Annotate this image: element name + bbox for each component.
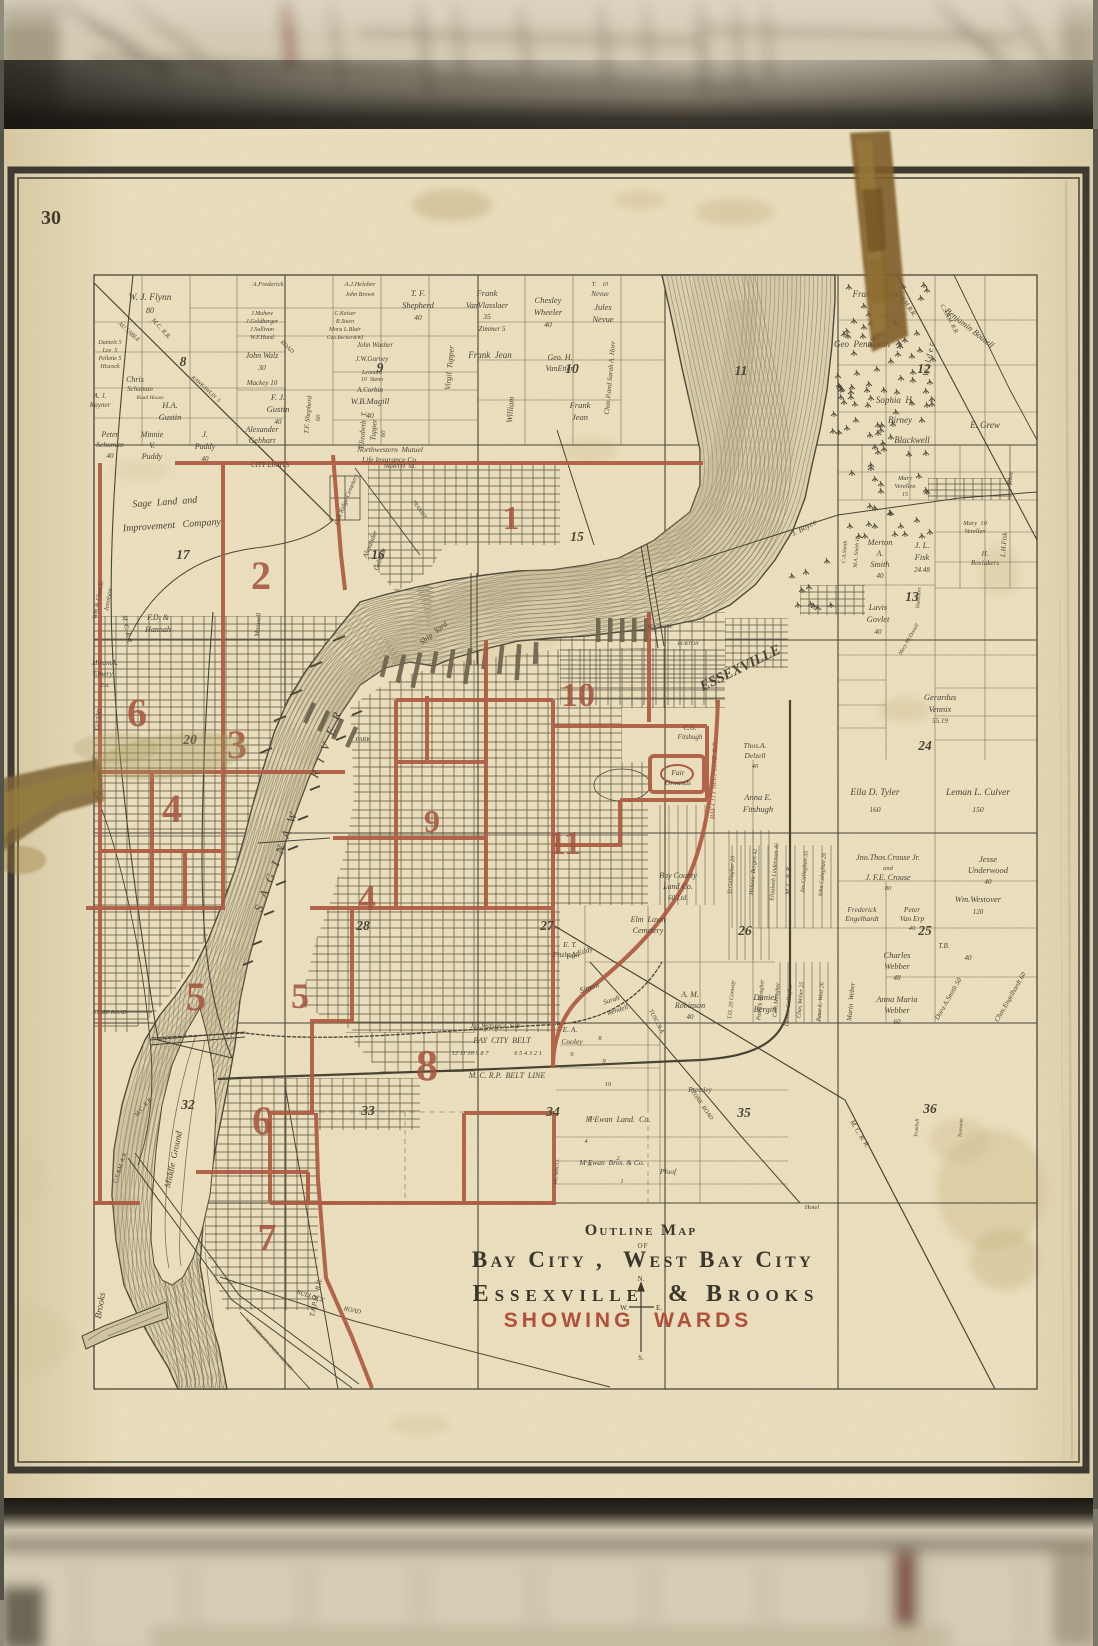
svg-text:35: 35 [736, 1105, 751, 1120]
svg-text:Kayner: Kayner [89, 401, 111, 409]
svg-text:Emery: Emery [92, 669, 113, 678]
svg-text:F.D. &: F.D. & [146, 613, 170, 622]
svg-text:A.: A. [876, 549, 884, 558]
svg-text:Gustin: Gustin [267, 404, 290, 414]
svg-text:H.: H. [981, 550, 989, 558]
svg-text:Thos.A.: Thos.A. [744, 741, 767, 750]
svg-text:Bay County: Bay County [659, 871, 697, 880]
svg-text:Jas.Watson's Sub: Jas.Watson's Sub [470, 1022, 520, 1030]
svg-text:E. T.: E. T. [562, 940, 577, 949]
svg-text:SHOWING WARDS: SHOWING WARDS [504, 1309, 753, 1332]
svg-text:Zimmer 5: Zimmer 5 [478, 325, 506, 333]
svg-text:VanEtten: VanEtten [546, 364, 575, 373]
svg-text:Shepherd: Shepherd [402, 300, 435, 310]
svg-text:A.Frederick: A.Frederick [252, 281, 284, 288]
svg-text:A.Corbin: A.Corbin [356, 386, 383, 394]
svg-text:55.19: 55.19 [932, 717, 948, 725]
svg-text:8: 8 [416, 1041, 438, 1090]
svg-text:Rose: Rose [1005, 471, 1014, 486]
svg-text:VanVlasslaer: VanVlasslaer [466, 301, 509, 310]
svg-text:John Walz: John Walz [246, 351, 280, 360]
svg-text:Underwood: Underwood [968, 865, 1009, 875]
svg-text:48: 48 [894, 974, 902, 982]
svg-text:40: 40 [965, 954, 973, 962]
svg-text:Wm.Westover: Wm.Westover [955, 894, 1002, 904]
svg-text:Frank Jean: Frank Jean [467, 350, 512, 360]
svg-text:Tupper: Tupper [368, 419, 379, 441]
svg-text:V.: V. [149, 441, 155, 450]
svg-text:Smith: Smith [870, 559, 889, 569]
svg-text:Engelhardt: Engelhardt [844, 914, 879, 923]
svg-text:S.: S. [638, 1354, 644, 1362]
svg-text:MᶜEwan Land. Co.: MᶜEwan Land. Co. [585, 1115, 651, 1124]
svg-text:Jesse: Jesse [979, 854, 997, 864]
svg-text:Land Co.: Land Co. [662, 882, 693, 891]
svg-text:John Washer: John Washer [357, 341, 393, 349]
svg-text:W.: W. [620, 1304, 628, 1312]
svg-text:10: 10 [561, 677, 595, 714]
svg-text:Gebhart: Gebhart [249, 436, 276, 445]
svg-text:T. F.: T. F. [411, 288, 426, 298]
svg-text:WOODSIDE: WOODSIDE [647, 625, 673, 630]
svg-text:C.G.: C.G. [683, 724, 696, 732]
svg-text:Ploof: Ploof [659, 1167, 677, 1176]
svg-text:Fair: Fair [670, 768, 684, 777]
svg-text:E. Grew: E. Grew [969, 420, 1000, 430]
svg-text:E. A.: E. A. [562, 1025, 578, 1034]
svg-text:Cooley: Cooley [561, 1037, 583, 1046]
svg-text:40: 40 [107, 452, 115, 460]
svg-text:Govlet: Govlet [867, 614, 890, 624]
svg-text:25: 25 [917, 923, 932, 938]
svg-text:Mary 10: Mary 10 [962, 520, 988, 527]
svg-text:H.A.: H.A. [161, 400, 178, 410]
svg-text:10: 10 [605, 1081, 612, 1088]
svg-text:Frederick: Frederick [846, 905, 877, 914]
svg-text:J.Mahew: J.Mahew [251, 311, 273, 317]
svg-text:NORTH ST.: NORTH ST. [383, 463, 417, 470]
svg-text:Birney: Birney [888, 415, 912, 425]
svg-text:Wheeler: Wheeler [534, 307, 563, 317]
svg-text:Mackey 10: Mackey 10 [246, 379, 278, 387]
svg-text:Peter: Peter [903, 905, 920, 914]
svg-text:Hiscock: Hiscock [99, 364, 120, 370]
svg-text:Chris: Chris [126, 375, 144, 384]
svg-text:26: 26 [737, 923, 752, 938]
svg-text:Blackwell: Blackwell [894, 435, 930, 445]
svg-text:40: 40 [202, 455, 210, 463]
svg-text:Nevue: Nevue [590, 290, 609, 298]
svg-text:27: 27 [539, 918, 555, 933]
svg-text:40: 40 [544, 320, 552, 329]
svg-text:Alexander: Alexander [245, 425, 280, 434]
svg-text:J. L.: J. L. [915, 540, 930, 550]
svg-text:Road House: Road House [135, 395, 164, 401]
svg-text:J.Sullivan: J.Sullivan [250, 327, 274, 333]
svg-text:Geo. H.: Geo. H. [547, 353, 572, 362]
svg-text:6: 6 [127, 690, 147, 735]
svg-text:Puddy: Puddy [194, 442, 216, 451]
svg-text:40: 40 [877, 572, 885, 580]
svg-text:34: 34 [545, 1104, 560, 1119]
svg-text:Puddy: Puddy [141, 452, 163, 461]
svg-text:32: 32 [180, 1097, 195, 1112]
svg-text:40: 40 [985, 878, 993, 886]
svg-text:M. C. R. R.: M. C. R. R. [784, 865, 792, 896]
svg-text:Ella D. Tyler: Ella D. Tyler [849, 788, 899, 798]
svg-text:24.48: 24.48 [914, 566, 930, 574]
svg-text:24: 24 [917, 738, 932, 753]
svg-text:Verellen: Verellen [894, 483, 915, 490]
svg-text:17: 17 [176, 547, 191, 562]
svg-text:Outline Map: Outline Map [585, 1222, 698, 1239]
svg-text:10 Steno: 10 Steno [361, 377, 383, 383]
svg-text:40: 40 [909, 925, 916, 932]
svg-text:Charles: Charles [884, 950, 912, 960]
svg-text:Sophia H.: Sophia H. [876, 395, 914, 405]
svg-text:J.: J. [202, 430, 208, 439]
svg-text:40: 40 [752, 763, 759, 770]
svg-text:Mary: Mary [897, 475, 912, 482]
svg-text:7: 7 [258, 1217, 277, 1259]
svg-text:Gerardus: Gerardus [924, 692, 957, 702]
svg-text:Delzell: Delzell [743, 751, 765, 760]
svg-text:Northwestern Mutuel: Northwestern Mutuel [356, 445, 423, 454]
svg-text:120: 120 [973, 908, 984, 916]
svg-text:Est.: Est. [99, 682, 110, 689]
svg-text:Jean: Jean [572, 412, 588, 422]
svg-text:M. C. R.P. BELT LINE: M. C. R.P. BELT LINE [468, 1071, 546, 1080]
svg-text:60: 60 [894, 1018, 902, 1026]
svg-text:A.J.Heleber: A.J.Heleber [343, 281, 376, 288]
svg-text:Mora L.Blair: Mora L.Blair [328, 327, 362, 333]
svg-text:Geo.Becker&Wf: Geo.Becker&Wf [327, 334, 365, 341]
svg-text:J.W.Gurney: J.W.Gurney [356, 355, 390, 363]
svg-text:F. J.: F. J. [270, 392, 285, 402]
svg-text:Schuman: Schuman [96, 440, 124, 449]
svg-text:Fitshugh: Fitshugh [677, 733, 703, 741]
svg-text:Fitshugh: Fitshugh [742, 804, 773, 814]
svg-text:30: 30 [41, 207, 61, 229]
svg-text:80: 80 [885, 885, 892, 892]
svg-text:A. M.: A. M. [680, 990, 699, 999]
svg-text:Frank: Frank [476, 288, 498, 298]
svg-text:Jules: Jules [594, 302, 612, 312]
svg-text:BAY CITY BELT: BAY CITY BELT [473, 1036, 531, 1045]
svg-text:Lee 5: Lee 5 [102, 348, 118, 354]
svg-text:Fisk: Fisk [914, 552, 930, 562]
svg-text:150: 150 [972, 805, 984, 814]
svg-text:and: and [883, 865, 894, 872]
svg-text:Daniels 5: Daniels 5 [97, 340, 121, 346]
svg-text:Lavis: Lavis [868, 602, 888, 612]
svg-text:Grounds: Grounds [665, 778, 691, 787]
svg-text:Peter: Peter [100, 430, 119, 439]
svg-text:HiramA.: HiramA. [91, 658, 118, 667]
svg-text:STATE ROAD: STATE ROAD [93, 1010, 127, 1016]
svg-text:W.B.Magill: W.B.Magill [351, 396, 390, 406]
svg-text:Frank: Frank [569, 400, 591, 410]
svg-text:BURTON: BURTON [677, 641, 699, 647]
svg-text:Chesley: Chesley [535, 295, 562, 305]
svg-text:5: 5 [291, 976, 309, 1016]
svg-text:4: 4 [162, 786, 182, 831]
svg-text:Webber: Webber [884, 961, 910, 971]
svg-text:2: 2 [251, 553, 271, 598]
svg-text:8: 8 [180, 354, 187, 369]
svg-text:CITY LIMITS: CITY LIMITS [251, 461, 290, 469]
svg-text:Cemetery: Cemetery [633, 926, 664, 935]
svg-text:Nevue: Nevue [591, 314, 613, 324]
svg-text:A. J.: A. J. [93, 392, 107, 400]
svg-text:Vennix: Vennix [929, 704, 952, 714]
svg-text:PARK: PARK [354, 736, 371, 743]
svg-text:T. 10: T. 10 [592, 282, 608, 288]
svg-text:80: 80 [146, 306, 154, 315]
svg-text:C.Keiser: C.Keiser [334, 311, 356, 317]
svg-text:60 Ltd.: 60 Ltd. [668, 894, 688, 902]
svg-text:Webber: Webber [884, 1005, 910, 1015]
svg-text:15: 15 [902, 492, 908, 498]
svg-text:12 11 10 9 8 7: 12 11 10 9 8 7 [452, 1050, 490, 1057]
svg-text:Pellette 5: Pellette 5 [98, 356, 122, 362]
svg-text:Hotel: Hotel [804, 1204, 820, 1211]
svg-text:Leman L. Culver: Leman L. Culver [945, 788, 1010, 798]
svg-text:5: 5 [186, 974, 206, 1019]
svg-text:Hannah: Hannah [144, 625, 171, 634]
svg-text:9: 9 [424, 803, 440, 839]
svg-text:Anna E.: Anna E. [743, 792, 771, 802]
svg-text:Essexville & Brooks: Essexville & Brooks [473, 1281, 820, 1307]
svg-text:T.B.: T.B. [938, 942, 949, 950]
svg-text:Van Erp: Van Erp [900, 914, 925, 923]
svg-text:4: 4 [358, 878, 376, 918]
svg-text:35: 35 [482, 312, 491, 321]
svg-text:Merton: Merton [866, 537, 892, 547]
svg-text:1: 1 [620, 1178, 623, 1185]
svg-text:Leonard: Leonard [361, 370, 383, 376]
svg-text:40: 40 [875, 628, 883, 636]
svg-text:Bay City , West Bay City: Bay City , West Bay City [472, 1247, 814, 1272]
svg-text:Anna Maria: Anna Maria [875, 994, 917, 1004]
svg-text:Robinson: Robinson [674, 1001, 705, 1010]
svg-text:28: 28 [355, 918, 370, 933]
svg-text:15: 15 [570, 529, 584, 544]
svg-text:W.F.Hand: W.F.Hand [250, 335, 275, 341]
svg-text:30: 30 [257, 363, 266, 372]
svg-text:N.: N. [638, 1275, 645, 1283]
svg-text:6 5 4 3 2 1: 6 5 4 3 2 1 [514, 1050, 542, 1057]
svg-text:1: 1 [503, 500, 520, 537]
svg-text:Jno.Thos.Crouse Jr.: Jno.Thos.Crouse Jr. [856, 853, 920, 862]
svg-text:Minnie: Minnie [140, 430, 164, 439]
svg-text:Gustin: Gustin [159, 412, 182, 422]
svg-text:11: 11 [549, 825, 581, 862]
svg-text:36: 36 [922, 1101, 937, 1116]
svg-text:6: 6 [252, 1098, 272, 1143]
svg-text:40: 40 [414, 313, 422, 322]
svg-text:40: 40 [687, 1013, 695, 1021]
svg-text:W. J. Flynn: W. J. Flynn [129, 293, 172, 303]
svg-text:Roviakers: Roviakers [970, 559, 999, 567]
svg-text:R.Steen: R.Steen [335, 319, 354, 325]
svg-text:160: 160 [869, 805, 881, 814]
svg-text:J.Goldberger: J.Goldberger [246, 319, 279, 325]
svg-text:E.: E. [656, 1304, 662, 1312]
svg-text:John Brown: John Brown [346, 292, 375, 298]
svg-text:11: 11 [735, 363, 748, 378]
svg-text:33: 33 [360, 1103, 375, 1118]
svg-text:Verellen: Verellen [964, 528, 985, 535]
svg-text:Schuman: Schuman [127, 385, 153, 393]
svg-text:Elm Lawn: Elm Lawn [630, 915, 666, 924]
svg-text:J. F.E. Crouse: J. F.E. Crouse [865, 873, 911, 882]
